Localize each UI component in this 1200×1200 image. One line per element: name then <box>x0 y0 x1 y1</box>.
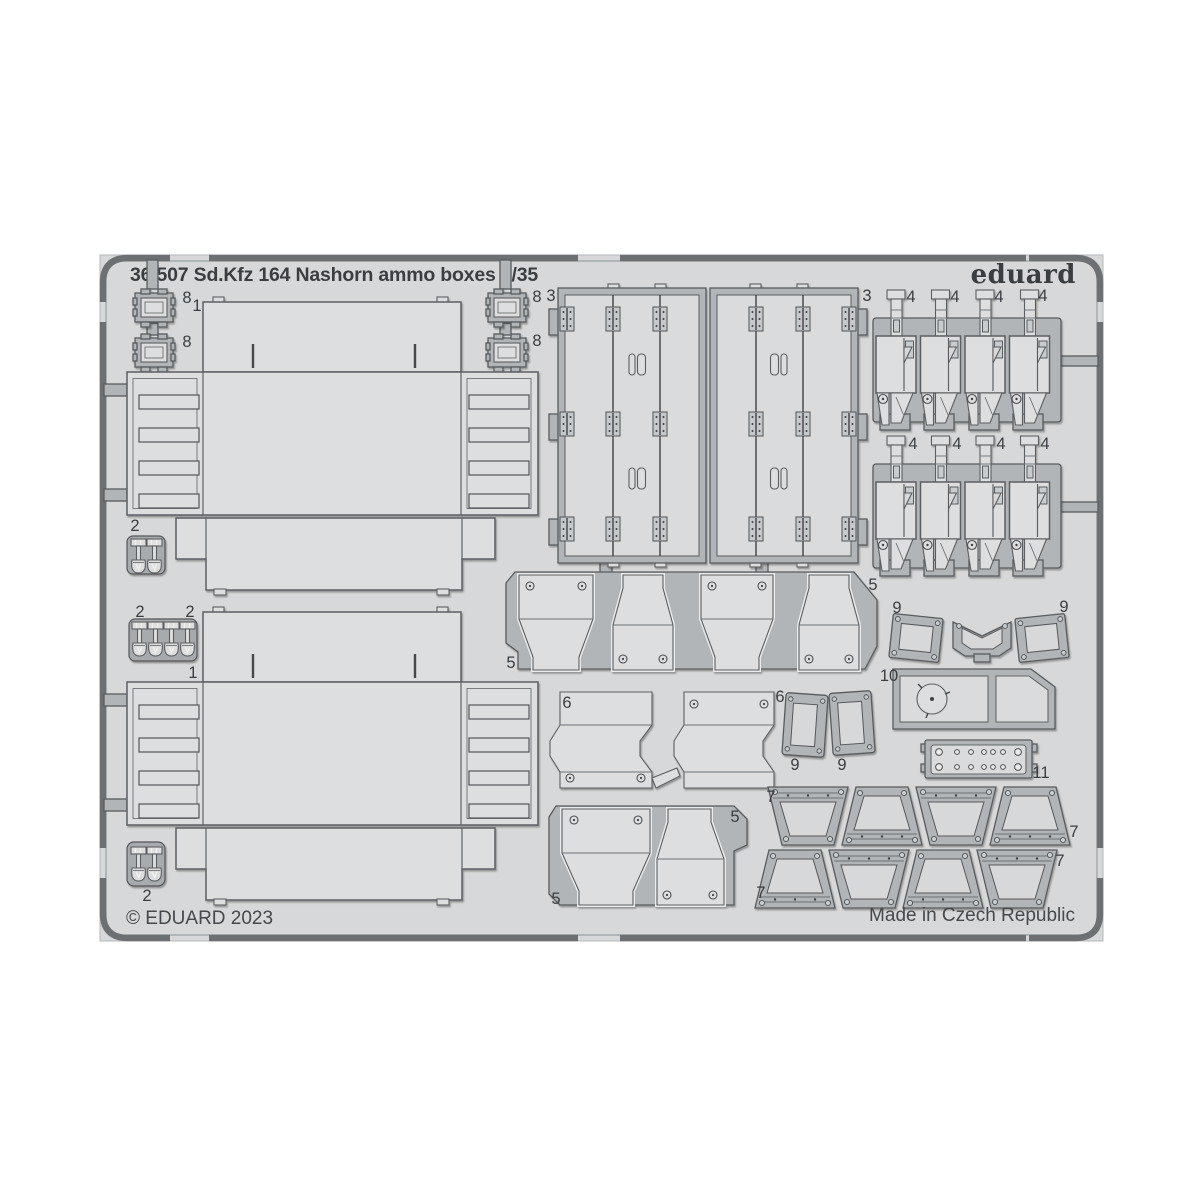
label-part-6-a: 6 <box>562 694 571 712</box>
part-10-tray <box>893 669 1055 729</box>
part-5-strip-bottom <box>549 806 747 905</box>
made-in-text: Made in Czech Republic <box>869 905 1075 926</box>
label-part-2-b: 2 <box>135 603 144 621</box>
label-part-9-b: 9 <box>1059 598 1068 616</box>
label-part-5-c: 5 <box>730 808 739 826</box>
label-part-10: 10 <box>880 667 898 685</box>
label-part-1-b: 1 <box>188 664 197 682</box>
part-5-strip-top <box>506 572 877 670</box>
label-part-7-b: 7 <box>1069 823 1078 841</box>
label-part-4-a1: 4 <box>906 288 915 306</box>
part-8-bracket-2 <box>133 334 175 372</box>
label-part-7-c: 7 <box>1055 852 1064 870</box>
label-part-3-a: 3 <box>546 287 555 305</box>
part-2-clip-single-bottom <box>127 842 165 886</box>
pe-sheet-svg: 36 507 Sd.Kfz 164 Nashorn ammo boxes 1/3… <box>0 0 1200 1200</box>
part-3-lid-right <box>710 284 867 567</box>
part-3-lid-left <box>549 284 706 567</box>
part-8-bracket-4 <box>486 334 528 372</box>
part-6-bracket-right <box>674 692 774 788</box>
label-part-4-a4: 4 <box>1038 287 1047 305</box>
label-part-2-a: 2 <box>130 517 139 535</box>
label-part-9-d: 9 <box>837 756 846 774</box>
label-part-8-b: 8 <box>182 333 191 351</box>
label-part-8-c: 8 <box>532 288 541 306</box>
part-2-clip-quad-strip <box>129 619 197 661</box>
label-part-4-b4: 4 <box>1040 435 1049 453</box>
label-part-4-a3: 4 <box>994 288 1003 306</box>
label-part-3-b: 3 <box>862 287 871 305</box>
label-part-9-c: 9 <box>790 756 799 774</box>
copyright-text: © EDUARD 2023 <box>126 908 273 929</box>
label-part-5-b: 5 <box>506 654 515 672</box>
label-part-6-b: 6 <box>775 688 784 706</box>
label-part-7-a: 7 <box>766 788 775 806</box>
photoetch-sheet-product-image: 36 507 Sd.Kfz 164 Nashorn ammo boxes 1/3… <box>0 0 1200 1200</box>
label-part-5-a: 5 <box>868 576 877 594</box>
label-part-7-d: 7 <box>756 884 765 902</box>
sheet-title: 36 507 Sd.Kfz 164 Nashorn ammo boxes 1/3… <box>130 264 538 286</box>
label-part-2-c: 2 <box>185 603 194 621</box>
part-11-plate <box>921 740 1037 778</box>
brand-logo: eduard <box>971 260 1076 290</box>
label-part-4-b2: 4 <box>952 435 961 453</box>
part-8-bracket-1 <box>133 289 175 327</box>
label-part-4-b3: 4 <box>996 435 1005 453</box>
part-8-bracket-3 <box>486 289 528 327</box>
part-2-clip-single-top <box>127 536 165 574</box>
label-part-4-b1: 4 <box>908 435 917 453</box>
label-part-4-a2: 4 <box>950 288 959 306</box>
label-part-5-d: 5 <box>551 890 560 908</box>
label-part-8-d: 8 <box>532 332 541 350</box>
label-part-2-d: 2 <box>142 887 151 905</box>
label-part-11: 11 <box>1032 764 1049 782</box>
label-part-1-a: 1 <box>192 297 201 315</box>
label-part-8-a: 8 <box>182 289 191 307</box>
label-part-9-a: 9 <box>892 599 901 617</box>
